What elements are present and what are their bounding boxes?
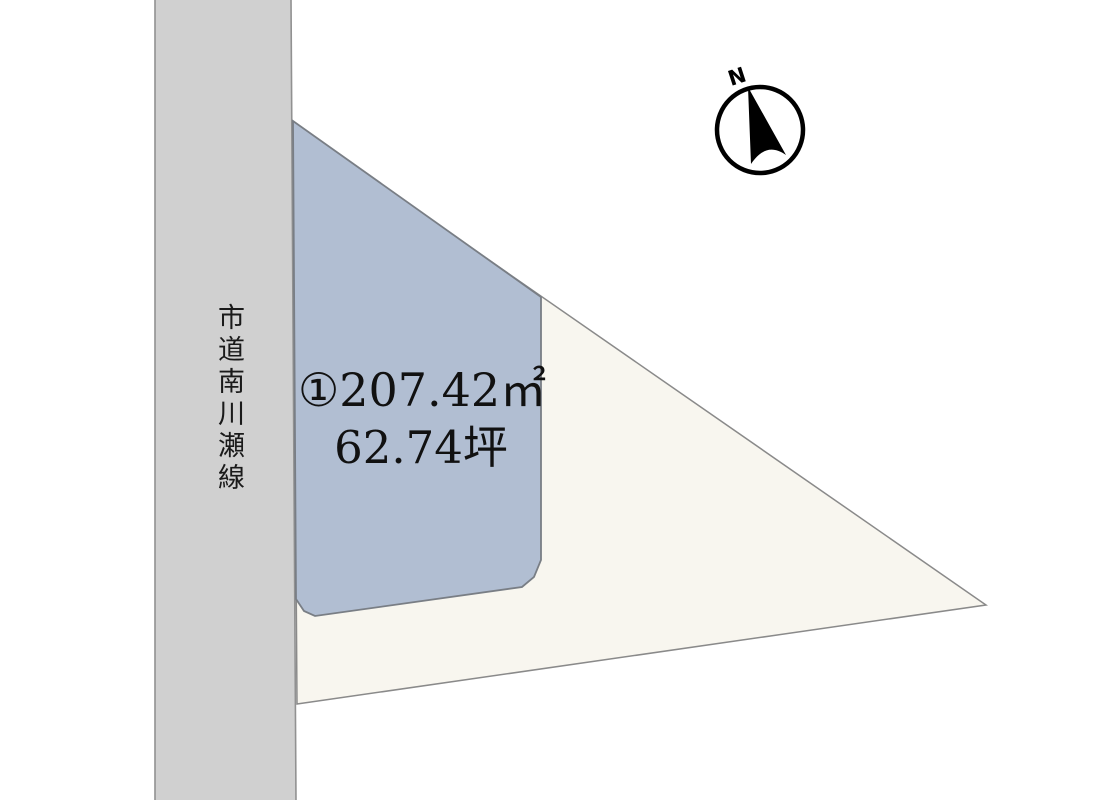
parcel-1-area-label: ①207.42㎡ — [298, 362, 544, 419]
compass-north-icon: N — [717, 63, 803, 173]
road-label: 市道南川瀬線 — [209, 303, 248, 495]
site-plan-canvas: N — [0, 0, 1100, 800]
compass-needle-icon — [748, 87, 786, 164]
site-plan: N 市道南川瀬線 ①207.42㎡ 62.74坪 — [0, 0, 1100, 800]
parcel-1-label: ①207.42㎡ 62.74坪 — [298, 362, 544, 476]
parcel-1-tsubo-label: 62.74坪 — [298, 419, 544, 476]
compass-north-label: N — [725, 63, 749, 91]
